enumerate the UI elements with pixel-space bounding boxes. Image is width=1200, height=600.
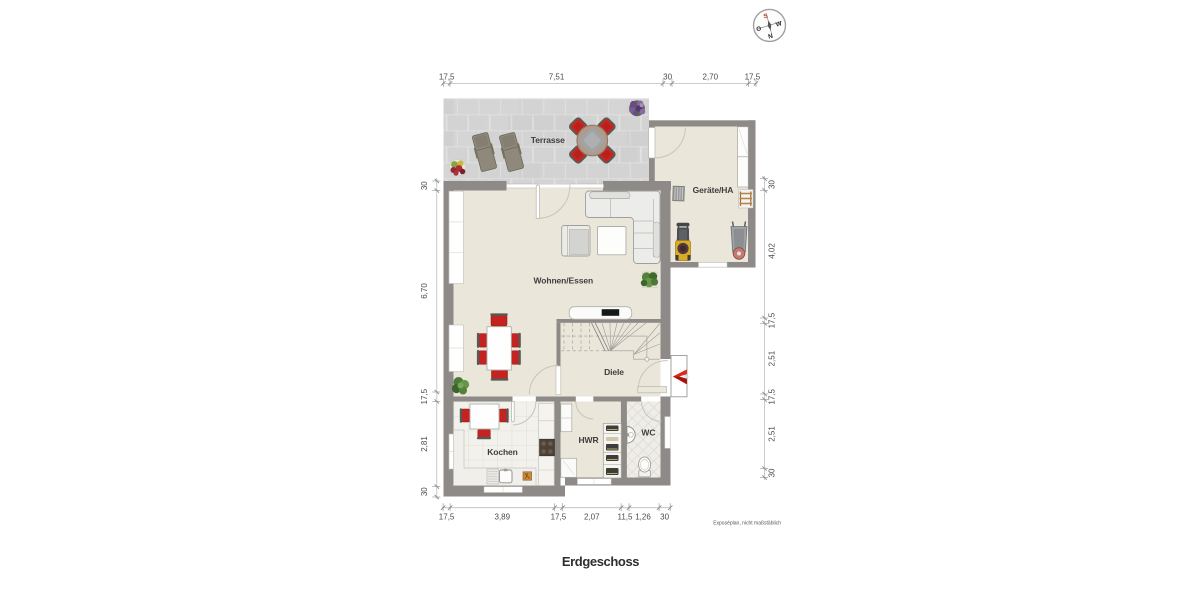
svg-text:Terrasse: Terrasse	[531, 135, 565, 145]
svg-text:17,5: 17,5	[745, 73, 761, 82]
svg-text:Geräte/HA: Geräte/HA	[693, 185, 734, 195]
svg-text:17,5: 17,5	[439, 513, 455, 522]
svg-text:WC: WC	[641, 428, 655, 438]
svg-text:Exposéplan, nicht maßstäblich: Exposéplan, nicht maßstäblich	[713, 521, 781, 527]
svg-text:Diele: Diele	[604, 367, 624, 377]
svg-text:2,70: 2,70	[703, 73, 719, 82]
svg-text:11,5: 11,5	[618, 513, 634, 522]
svg-text:2,51: 2,51	[768, 426, 777, 442]
svg-text:Wohnen/Essen: Wohnen/Essen	[534, 276, 594, 286]
svg-text:17,5: 17,5	[439, 73, 455, 82]
svg-text:Erdgeschoss: Erdgeschoss	[562, 554, 639, 569]
svg-text:HWR: HWR	[579, 435, 599, 445]
svg-text:4,02: 4,02	[768, 243, 777, 259]
svg-text:2,51: 2,51	[768, 350, 777, 366]
svg-text:30: 30	[420, 487, 429, 496]
svg-text:30: 30	[768, 180, 777, 189]
svg-text:3,89: 3,89	[495, 513, 511, 522]
svg-text:Kochen: Kochen	[487, 447, 518, 457]
svg-text:1,26: 1,26	[635, 513, 651, 522]
svg-text:6,70: 6,70	[420, 283, 429, 299]
svg-text:30: 30	[420, 181, 429, 190]
svg-text:2,81: 2,81	[420, 436, 429, 452]
svg-text:17,5: 17,5	[420, 388, 429, 404]
svg-text:7,51: 7,51	[549, 73, 565, 82]
svg-text:17,5: 17,5	[551, 513, 567, 522]
svg-text:30: 30	[768, 468, 777, 477]
svg-text:30: 30	[663, 73, 672, 82]
svg-text:30: 30	[660, 513, 669, 522]
svg-text:17,5: 17,5	[768, 388, 777, 404]
svg-text:17,5: 17,5	[768, 312, 777, 328]
svg-text:2,07: 2,07	[584, 513, 600, 522]
